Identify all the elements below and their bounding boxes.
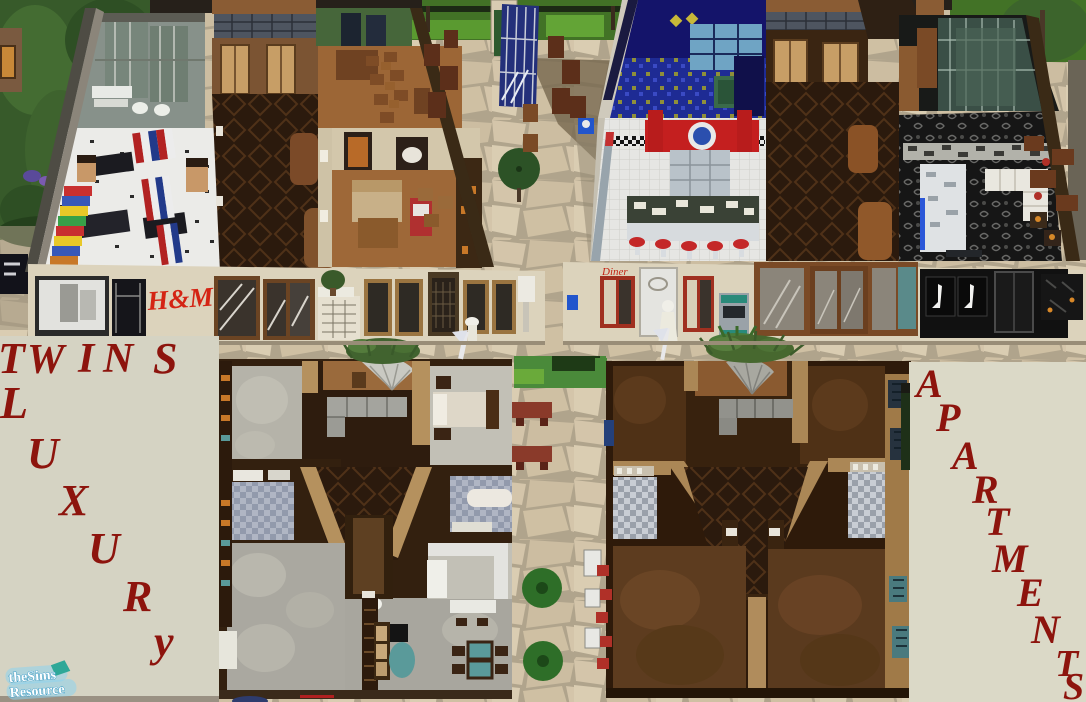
svg-text:S: S xyxy=(153,334,177,383)
svg-text:W: W xyxy=(27,337,67,383)
svg-text:U: U xyxy=(88,524,122,573)
svg-text:L: L xyxy=(0,377,28,428)
svg-text:S: S xyxy=(1063,666,1084,702)
svg-text:N: N xyxy=(102,336,135,382)
svg-text:X: X xyxy=(57,476,90,525)
svg-text:I: I xyxy=(77,336,96,382)
svg-text:H&M: H&M xyxy=(145,281,215,316)
svg-text:Diner: Diner xyxy=(601,266,628,278)
svg-text:R: R xyxy=(122,572,152,621)
svg-text:T: T xyxy=(0,334,27,383)
svg-text:U: U xyxy=(27,429,61,478)
